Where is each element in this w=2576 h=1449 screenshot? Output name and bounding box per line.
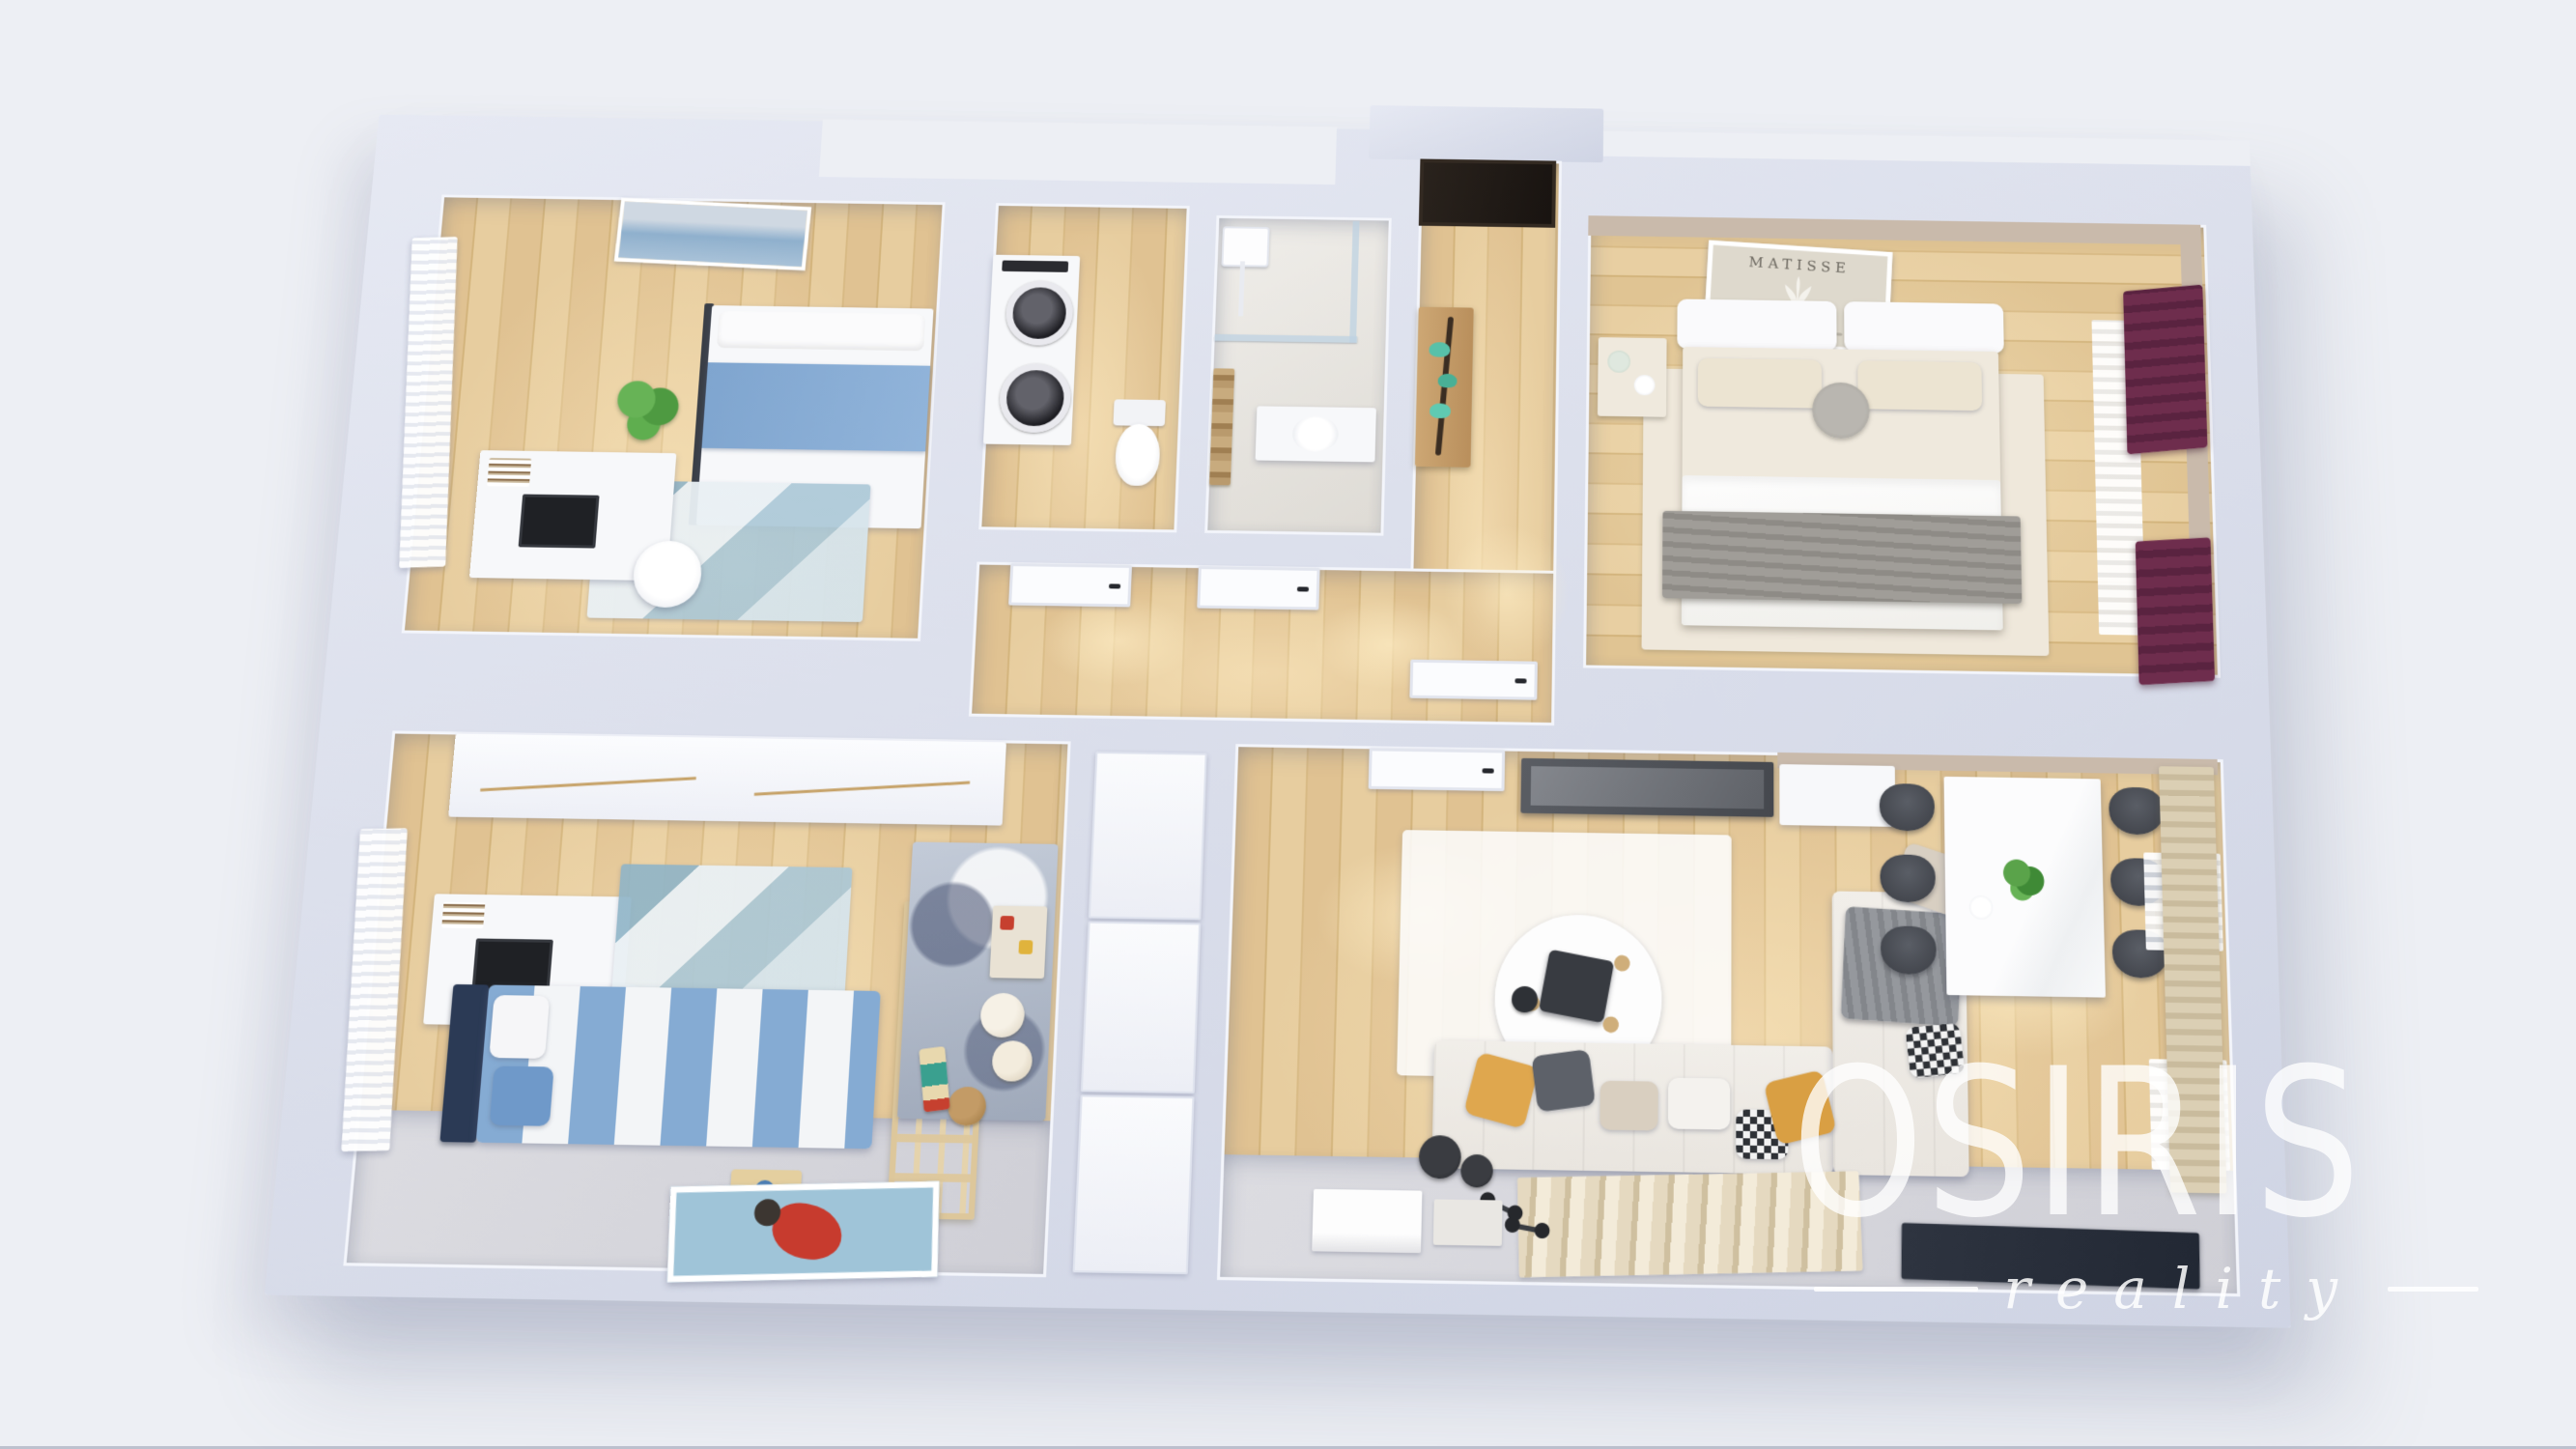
terrace-book <box>1433 1199 1503 1245</box>
kids-pillow-white <box>489 995 550 1059</box>
dining-chair <box>1881 925 1937 975</box>
closet-cabinet <box>1089 752 1207 920</box>
toilet <box>1109 399 1168 490</box>
kids-pillow-blue <box>490 1065 554 1125</box>
nightstand-decor <box>1607 351 1630 373</box>
master-pillow <box>1698 358 1822 409</box>
book-stack <box>441 902 485 929</box>
dining-table <box>1944 777 2106 998</box>
tv-side-cabinet <box>1779 764 1895 827</box>
headboard-cushion <box>1844 301 2004 354</box>
sink-basin <box>1292 416 1340 452</box>
teal-bird-decor <box>1438 374 1458 388</box>
seascape-wall-art <box>614 198 811 270</box>
master-curtain-lower <box>2136 537 2215 685</box>
toy-yellow <box>1018 940 1033 954</box>
teal-bird-decor <box>1429 342 1450 357</box>
hallway-door-open <box>1197 566 1319 610</box>
blue-throw-blanket <box>702 362 931 451</box>
ladder-towel-rack <box>1209 368 1234 485</box>
master-nightstand <box>1598 337 1667 417</box>
master-curtain-upper <box>2123 285 2207 455</box>
pillow-white <box>1668 1078 1730 1130</box>
pillow-beige <box>1599 1081 1657 1131</box>
dining-chair <box>1880 854 1936 902</box>
floor-poster <box>667 1181 940 1283</box>
kids-wardrobe <box>448 733 1006 825</box>
master-bed <box>1676 298 2010 630</box>
kids-geometric-rug <box>611 864 852 995</box>
wardrobe-rail <box>754 781 970 796</box>
closet-cabinet <box>1072 1094 1194 1274</box>
washer-dryer-stack <box>983 255 1080 445</box>
teal-bird-decor <box>1430 403 1451 418</box>
bed-pillow <box>717 311 925 351</box>
toilet-tank <box>1113 399 1165 426</box>
washer-door <box>1005 280 1074 346</box>
entry-protrusion-wall <box>1369 105 1603 162</box>
shower-head <box>1221 226 1269 267</box>
nightstand-shell <box>1634 375 1656 395</box>
master-pillow <box>1857 360 1982 411</box>
toilet-bowl <box>1115 423 1161 486</box>
top-recess-cut <box>819 120 1337 185</box>
entry-to-living-door <box>1409 660 1538 700</box>
entrance-door <box>1419 158 1556 227</box>
pillow-gray <box>1531 1049 1596 1112</box>
living-room-door <box>1369 748 1506 791</box>
washer-control-panel <box>1002 260 1068 271</box>
toy-shelf <box>989 906 1047 979</box>
wardrobe-rail <box>480 777 695 791</box>
round-accent-pillow <box>1812 383 1870 440</box>
wall-tv <box>1520 758 1773 817</box>
terrace-magazine <box>1312 1189 1422 1253</box>
laptop <box>519 495 600 549</box>
watermark-tagline: reality <box>2003 1256 2363 1321</box>
entry-console <box>1415 307 1474 468</box>
watermark-line-right <box>2388 1287 2478 1292</box>
table-plant <box>1996 852 2048 904</box>
gray-throw <box>1662 511 2022 604</box>
hallway-door-open <box>1008 563 1132 607</box>
tv-screen <box>1531 766 1765 809</box>
toy-red <box>1000 916 1014 930</box>
dining-chair <box>1880 783 1935 832</box>
wooden-toy <box>919 1046 949 1112</box>
closet-cabinet <box>1081 922 1201 1094</box>
table-cup <box>1969 895 1994 920</box>
monstera-plant <box>609 375 684 444</box>
bathroom-sink <box>1256 406 1376 462</box>
watermark-line-left <box>1814 1287 1978 1292</box>
watermark-tagline-row: reality <box>1814 1256 2478 1321</box>
kids-striped-bed <box>476 985 881 1150</box>
headboard-cushion <box>1677 298 1836 351</box>
coffee-table <box>1539 950 1614 1023</box>
book-stack <box>487 458 531 487</box>
dryer-door <box>998 363 1072 433</box>
watermark-brand: OSIRIS <box>1792 1041 2363 1246</box>
